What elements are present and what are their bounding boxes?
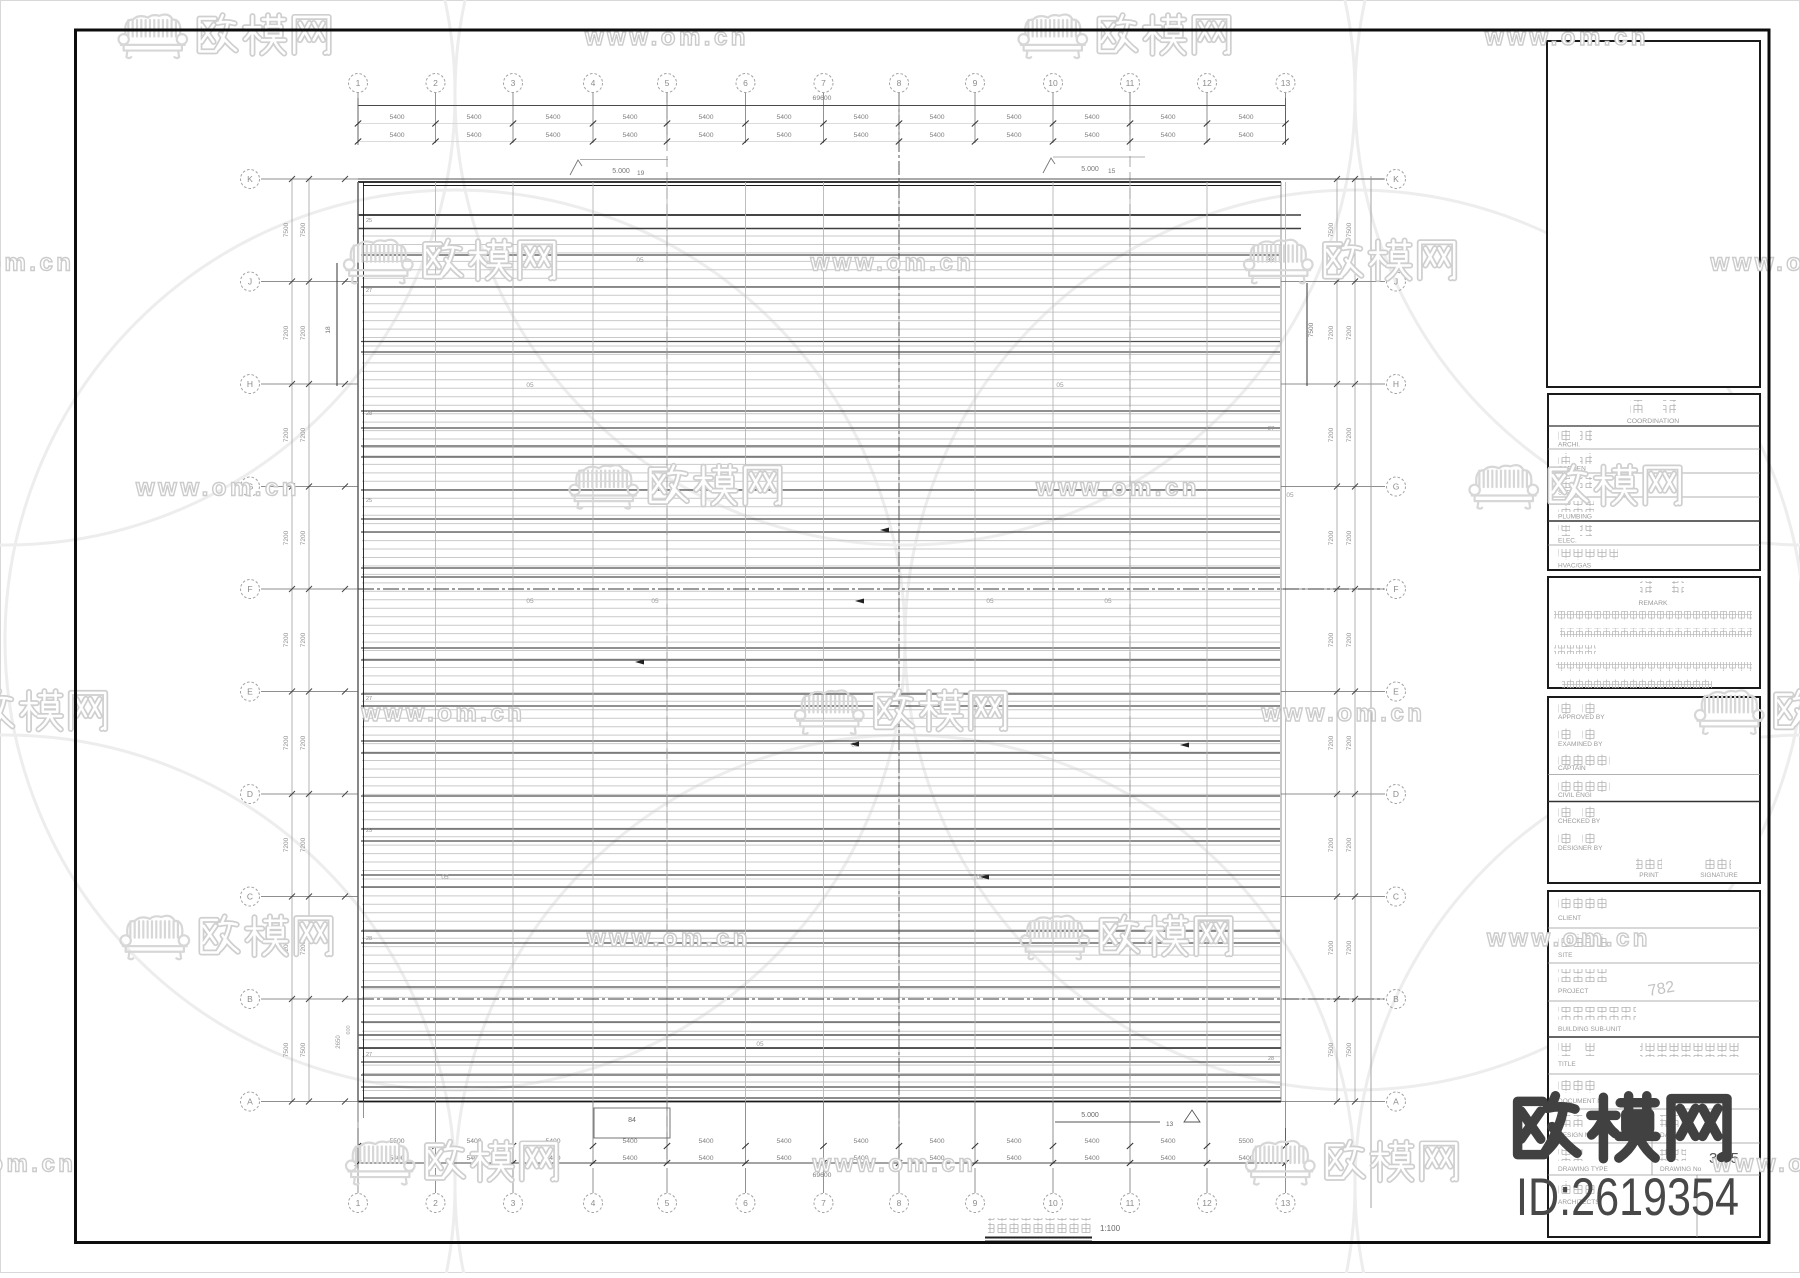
svg-text:7200: 7200: [1346, 427, 1353, 442]
svg-text:27: 27: [366, 288, 372, 294]
svg-text:1: 1: [356, 78, 361, 88]
svg-text:28: 28: [1268, 1056, 1274, 1062]
svg-text:5.000: 5.000: [1081, 166, 1099, 173]
svg-text:5400: 5400: [1006, 1155, 1021, 1162]
svg-text:2: 2: [433, 1198, 438, 1208]
svg-text:B: B: [1393, 994, 1399, 1004]
svg-text:05: 05: [986, 598, 994, 605]
svg-text:5400: 5400: [853, 132, 868, 139]
svg-text:13: 13: [1281, 1198, 1291, 1208]
svg-text:CAPTAIN: CAPTAIN: [1558, 765, 1586, 772]
svg-text:5400: 5400: [1084, 132, 1099, 139]
svg-text:D: D: [247, 789, 253, 799]
svg-text:9: 9: [973, 78, 978, 88]
svg-text:05: 05: [651, 598, 659, 605]
svg-text:4: 4: [591, 78, 596, 88]
svg-text:APPROVED BY: APPROVED BY: [1558, 714, 1605, 721]
svg-text:www.om.cn: www.om.cn: [1261, 700, 1426, 727]
svg-text:7: 7: [821, 1198, 826, 1208]
svg-text:5400: 5400: [1006, 132, 1021, 139]
svg-text:5400: 5400: [776, 114, 791, 121]
svg-text:05: 05: [756, 1041, 764, 1048]
svg-text:5400: 5400: [1238, 132, 1253, 139]
svg-text:G: G: [1393, 482, 1400, 492]
svg-text:5400: 5400: [698, 1155, 713, 1162]
svg-text:COORDINATION: COORDINATION: [1627, 418, 1679, 425]
svg-text:9: 9: [973, 1198, 978, 1208]
svg-text:5400: 5400: [1006, 1138, 1021, 1145]
svg-text:25: 25: [366, 218, 372, 224]
svg-text:12: 12: [1202, 1198, 1212, 1208]
svg-text:A: A: [1393, 1097, 1399, 1107]
svg-text:7200: 7200: [1346, 940, 1353, 955]
svg-text:5400: 5400: [1238, 114, 1253, 121]
svg-text:13: 13: [1166, 1121, 1174, 1128]
svg-text:7200: 7200: [1346, 735, 1353, 750]
svg-text:5400: 5400: [698, 1138, 713, 1145]
svg-text:05: 05: [441, 874, 449, 881]
svg-text:7200: 7200: [1328, 632, 1335, 647]
svg-text:5.000: 5.000: [612, 168, 630, 175]
svg-text:7500: 7500: [300, 1042, 307, 1057]
svg-text:PROJECT: PROJECT: [1558, 988, 1588, 995]
svg-text:5400: 5400: [1084, 114, 1099, 121]
svg-text:05: 05: [636, 257, 644, 264]
svg-text:5400: 5400: [622, 1155, 637, 1162]
svg-text:F: F: [247, 584, 252, 594]
svg-text:7200: 7200: [1328, 530, 1335, 545]
svg-text:7200: 7200: [283, 427, 290, 442]
svg-text:7200: 7200: [300, 735, 307, 750]
svg-text:05: 05: [1056, 382, 1064, 389]
svg-text:ARCHI.: ARCHI.: [1558, 442, 1580, 449]
svg-text:B: B: [247, 994, 253, 1004]
svg-text:7200: 7200: [300, 325, 307, 340]
svg-text:HVAC/GAS: HVAC/GAS: [1558, 563, 1592, 570]
svg-text:5400: 5400: [1084, 1155, 1099, 1162]
svg-text:J: J: [248, 277, 252, 287]
svg-text:7500: 7500: [283, 1042, 290, 1057]
svg-text:2: 2: [433, 78, 438, 88]
svg-text:www.om.cn: www.om.cn: [0, 1151, 76, 1178]
svg-text:15: 15: [1108, 168, 1116, 175]
svg-text:69600: 69600: [813, 95, 832, 102]
svg-text:www.om.cn: www.om.cn: [1484, 24, 1649, 51]
svg-text:5400: 5400: [929, 114, 944, 121]
svg-text:7200: 7200: [283, 837, 290, 852]
svg-text:ID:2619354: ID:2619354: [1516, 1168, 1739, 1227]
svg-text:7500: 7500: [1346, 222, 1353, 237]
svg-text:www.om.cn: www.om.cn: [0, 249, 74, 276]
svg-text:18: 18: [325, 326, 332, 334]
svg-text:5400: 5400: [1006, 114, 1021, 121]
svg-text:DESIGNER BY: DESIGNER BY: [1558, 845, 1603, 852]
svg-text:5400: 5400: [1160, 132, 1175, 139]
svg-text:27: 27: [366, 1052, 372, 1058]
svg-text:E: E: [1393, 687, 1399, 697]
svg-text:7200: 7200: [1346, 837, 1353, 852]
svg-text:6: 6: [743, 78, 748, 88]
svg-text:C: C: [247, 892, 253, 902]
svg-text:4: 4: [591, 1198, 596, 1208]
svg-text:K: K: [247, 174, 253, 184]
svg-text:5400: 5400: [1160, 1138, 1175, 1145]
svg-text:5500: 5500: [1238, 1138, 1253, 1145]
svg-text:7200: 7200: [300, 837, 307, 852]
svg-text:5400: 5400: [545, 132, 560, 139]
svg-text:CHECKED BY: CHECKED BY: [1558, 818, 1601, 825]
svg-text:25: 25: [366, 498, 372, 504]
svg-text:7200: 7200: [1328, 735, 1335, 750]
svg-text:7500: 7500: [1346, 1042, 1353, 1057]
svg-text:7200: 7200: [283, 632, 290, 647]
svg-text:5400: 5400: [545, 114, 560, 121]
svg-text:A: A: [247, 1097, 253, 1107]
svg-text:5400: 5400: [1160, 1155, 1175, 1162]
svg-text:E: E: [247, 687, 253, 697]
svg-text:7200: 7200: [1328, 325, 1335, 340]
svg-text:REMARK: REMARK: [1638, 600, 1668, 607]
svg-text:8: 8: [897, 1198, 902, 1208]
svg-text:05: 05: [1104, 598, 1112, 605]
svg-text:CLIENT: CLIENT: [1558, 915, 1581, 922]
svg-text:1:100: 1:100: [1100, 1224, 1121, 1233]
svg-text:5400: 5400: [853, 114, 868, 121]
svg-text:7: 7: [821, 78, 826, 88]
svg-text:www.om.cn: www.om.cn: [586, 925, 751, 952]
svg-text:www.om.cn: www.om.cn: [812, 1151, 977, 1178]
svg-text:EXAMINED BY: EXAMINED BY: [1558, 741, 1603, 748]
svg-text:600: 600: [346, 1025, 352, 1034]
svg-text:7200: 7200: [1346, 325, 1353, 340]
svg-text:2650: 2650: [336, 1035, 342, 1049]
svg-text:ELEC.: ELEC.: [1558, 538, 1577, 545]
svg-text:7200: 7200: [283, 735, 290, 750]
svg-text:www.om.cn: www.om.cn: [361, 700, 526, 727]
svg-text:5400: 5400: [698, 114, 713, 121]
svg-text:7200: 7200: [283, 325, 290, 340]
svg-text:D: D: [1393, 789, 1399, 799]
svg-text:7200: 7200: [1346, 530, 1353, 545]
svg-text:27: 27: [1268, 426, 1274, 432]
svg-text:7200: 7200: [1328, 940, 1335, 955]
svg-text:7200: 7200: [300, 530, 307, 545]
svg-text:13: 13: [1281, 78, 1291, 88]
svg-text:www.om.cn: www.om.cn: [810, 249, 975, 276]
svg-text:11: 11: [1126, 1198, 1135, 1208]
svg-text:7200: 7200: [300, 427, 307, 442]
svg-text:SITE: SITE: [1558, 952, 1573, 959]
svg-text:05: 05: [526, 382, 534, 389]
svg-text:7200: 7200: [1346, 632, 1353, 647]
svg-text:7200: 7200: [300, 632, 307, 647]
svg-text:TITLE: TITLE: [1558, 1061, 1576, 1068]
svg-text:PRINT: PRINT: [1639, 872, 1659, 879]
svg-text:5400: 5400: [1160, 114, 1175, 121]
svg-text:H: H: [247, 379, 253, 389]
svg-text:28: 28: [366, 936, 372, 942]
svg-text:7200: 7200: [1328, 427, 1335, 442]
svg-text:05: 05: [526, 598, 534, 605]
svg-text:C: C: [1393, 892, 1399, 902]
svg-text:5400: 5400: [622, 1138, 637, 1145]
svg-text:5400: 5400: [1084, 1138, 1099, 1145]
svg-text:1: 1: [356, 1198, 361, 1208]
svg-text:5400: 5400: [622, 114, 637, 121]
svg-text:19: 19: [637, 170, 645, 177]
svg-text:6: 6: [743, 1198, 748, 1208]
svg-text:5400: 5400: [622, 132, 637, 139]
svg-text:K: K: [1393, 174, 1399, 184]
svg-text:05: 05: [1286, 492, 1294, 499]
svg-text:5400: 5400: [776, 1155, 791, 1162]
svg-text:5.000: 5.000: [1081, 1112, 1099, 1119]
svg-text:www.om.cn: www.om.cn: [1035, 475, 1200, 502]
svg-text:www.om.cn: www.om.cn: [135, 475, 300, 502]
svg-text:7500: 7500: [300, 222, 307, 237]
svg-text:10: 10: [1048, 78, 1058, 88]
svg-text:12: 12: [1202, 78, 1212, 88]
svg-text:J: J: [1394, 277, 1398, 287]
svg-text:www.om.cn: www.om.cn: [1486, 925, 1651, 952]
svg-text:CIVIL ENGI: CIVIL ENGI: [1558, 792, 1592, 799]
svg-text:BUILDING SUB-UNIT: BUILDING SUB-UNIT: [1558, 1026, 1621, 1033]
svg-text:5: 5: [665, 1198, 670, 1208]
svg-text:5400: 5400: [929, 1138, 944, 1145]
svg-text:28: 28: [366, 411, 372, 417]
svg-text:5400: 5400: [698, 132, 713, 139]
svg-text:10: 10: [1048, 1198, 1058, 1208]
svg-text:7200: 7200: [1328, 837, 1335, 852]
svg-text:5: 5: [665, 78, 670, 88]
svg-text:5400: 5400: [853, 1138, 868, 1145]
svg-text:SIGNATURE: SIGNATURE: [1700, 872, 1738, 879]
svg-text:F: F: [1393, 584, 1398, 594]
svg-text:5400: 5400: [776, 132, 791, 139]
svg-text:8: 8: [897, 78, 902, 88]
svg-text:5400: 5400: [776, 1138, 791, 1145]
svg-text:H: H: [1393, 379, 1399, 389]
svg-text:7500: 7500: [283, 222, 290, 237]
svg-text:5400: 5400: [466, 132, 481, 139]
svg-text:5400: 5400: [466, 114, 481, 121]
svg-text:www.om.cn: www.om.cn: [1710, 249, 1800, 276]
svg-text:7200: 7200: [283, 530, 290, 545]
svg-text:25: 25: [366, 828, 372, 834]
svg-text:3: 3: [511, 78, 516, 88]
svg-text:www.om.cn: www.om.cn: [584, 24, 749, 51]
svg-text:7500: 7500: [1308, 322, 1315, 337]
svg-text:7500: 7500: [1328, 1042, 1335, 1057]
svg-text:5400: 5400: [389, 132, 404, 139]
svg-text:5400: 5400: [929, 132, 944, 139]
svg-text:5400: 5400: [389, 114, 404, 121]
svg-text:84: 84: [628, 1117, 636, 1124]
svg-text:11: 11: [1126, 78, 1135, 88]
svg-text:3: 3: [511, 1198, 516, 1208]
svg-text:PLUMBING: PLUMBING: [1558, 514, 1592, 521]
svg-text:7500: 7500: [1328, 222, 1335, 237]
